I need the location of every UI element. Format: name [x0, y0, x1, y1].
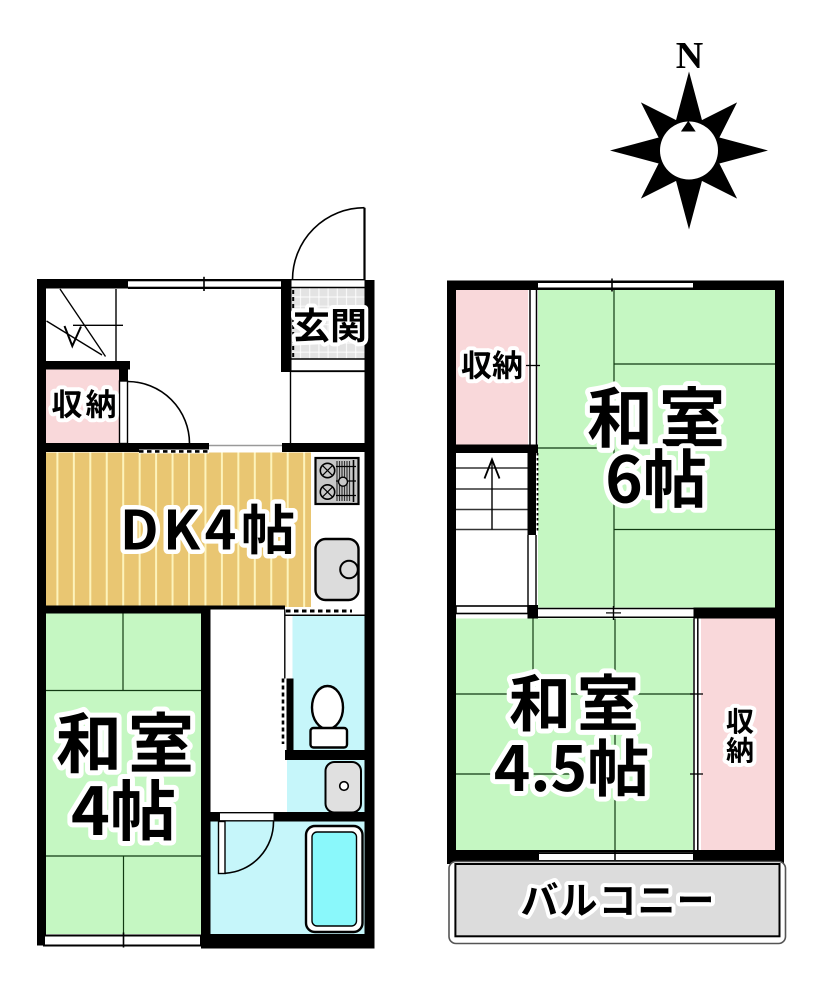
- svg-text:N: N: [676, 35, 703, 77]
